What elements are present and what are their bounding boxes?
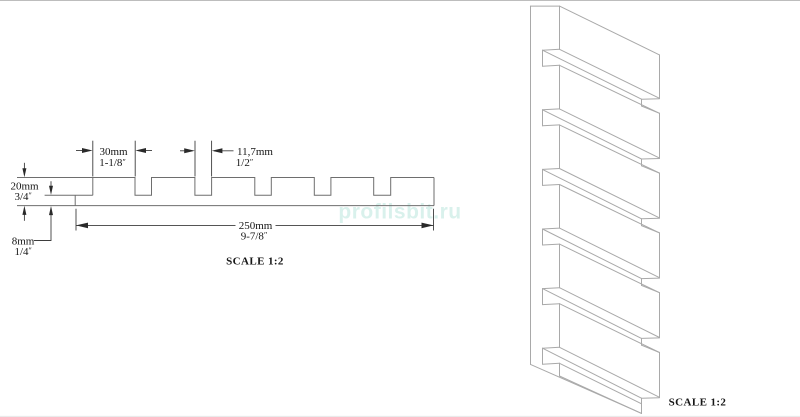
svg-text:SCALE 1:2: SCALE 1:2	[669, 397, 727, 409]
svg-text:SCALE 1:2: SCALE 1:2	[226, 256, 284, 268]
svg-text:9-7/8″: 9-7/8″	[241, 231, 268, 243]
svg-text:1-1/8″: 1-1/8″	[99, 157, 126, 169]
svg-text:profilsbit.ru: profilsbit.ru	[338, 200, 461, 223]
